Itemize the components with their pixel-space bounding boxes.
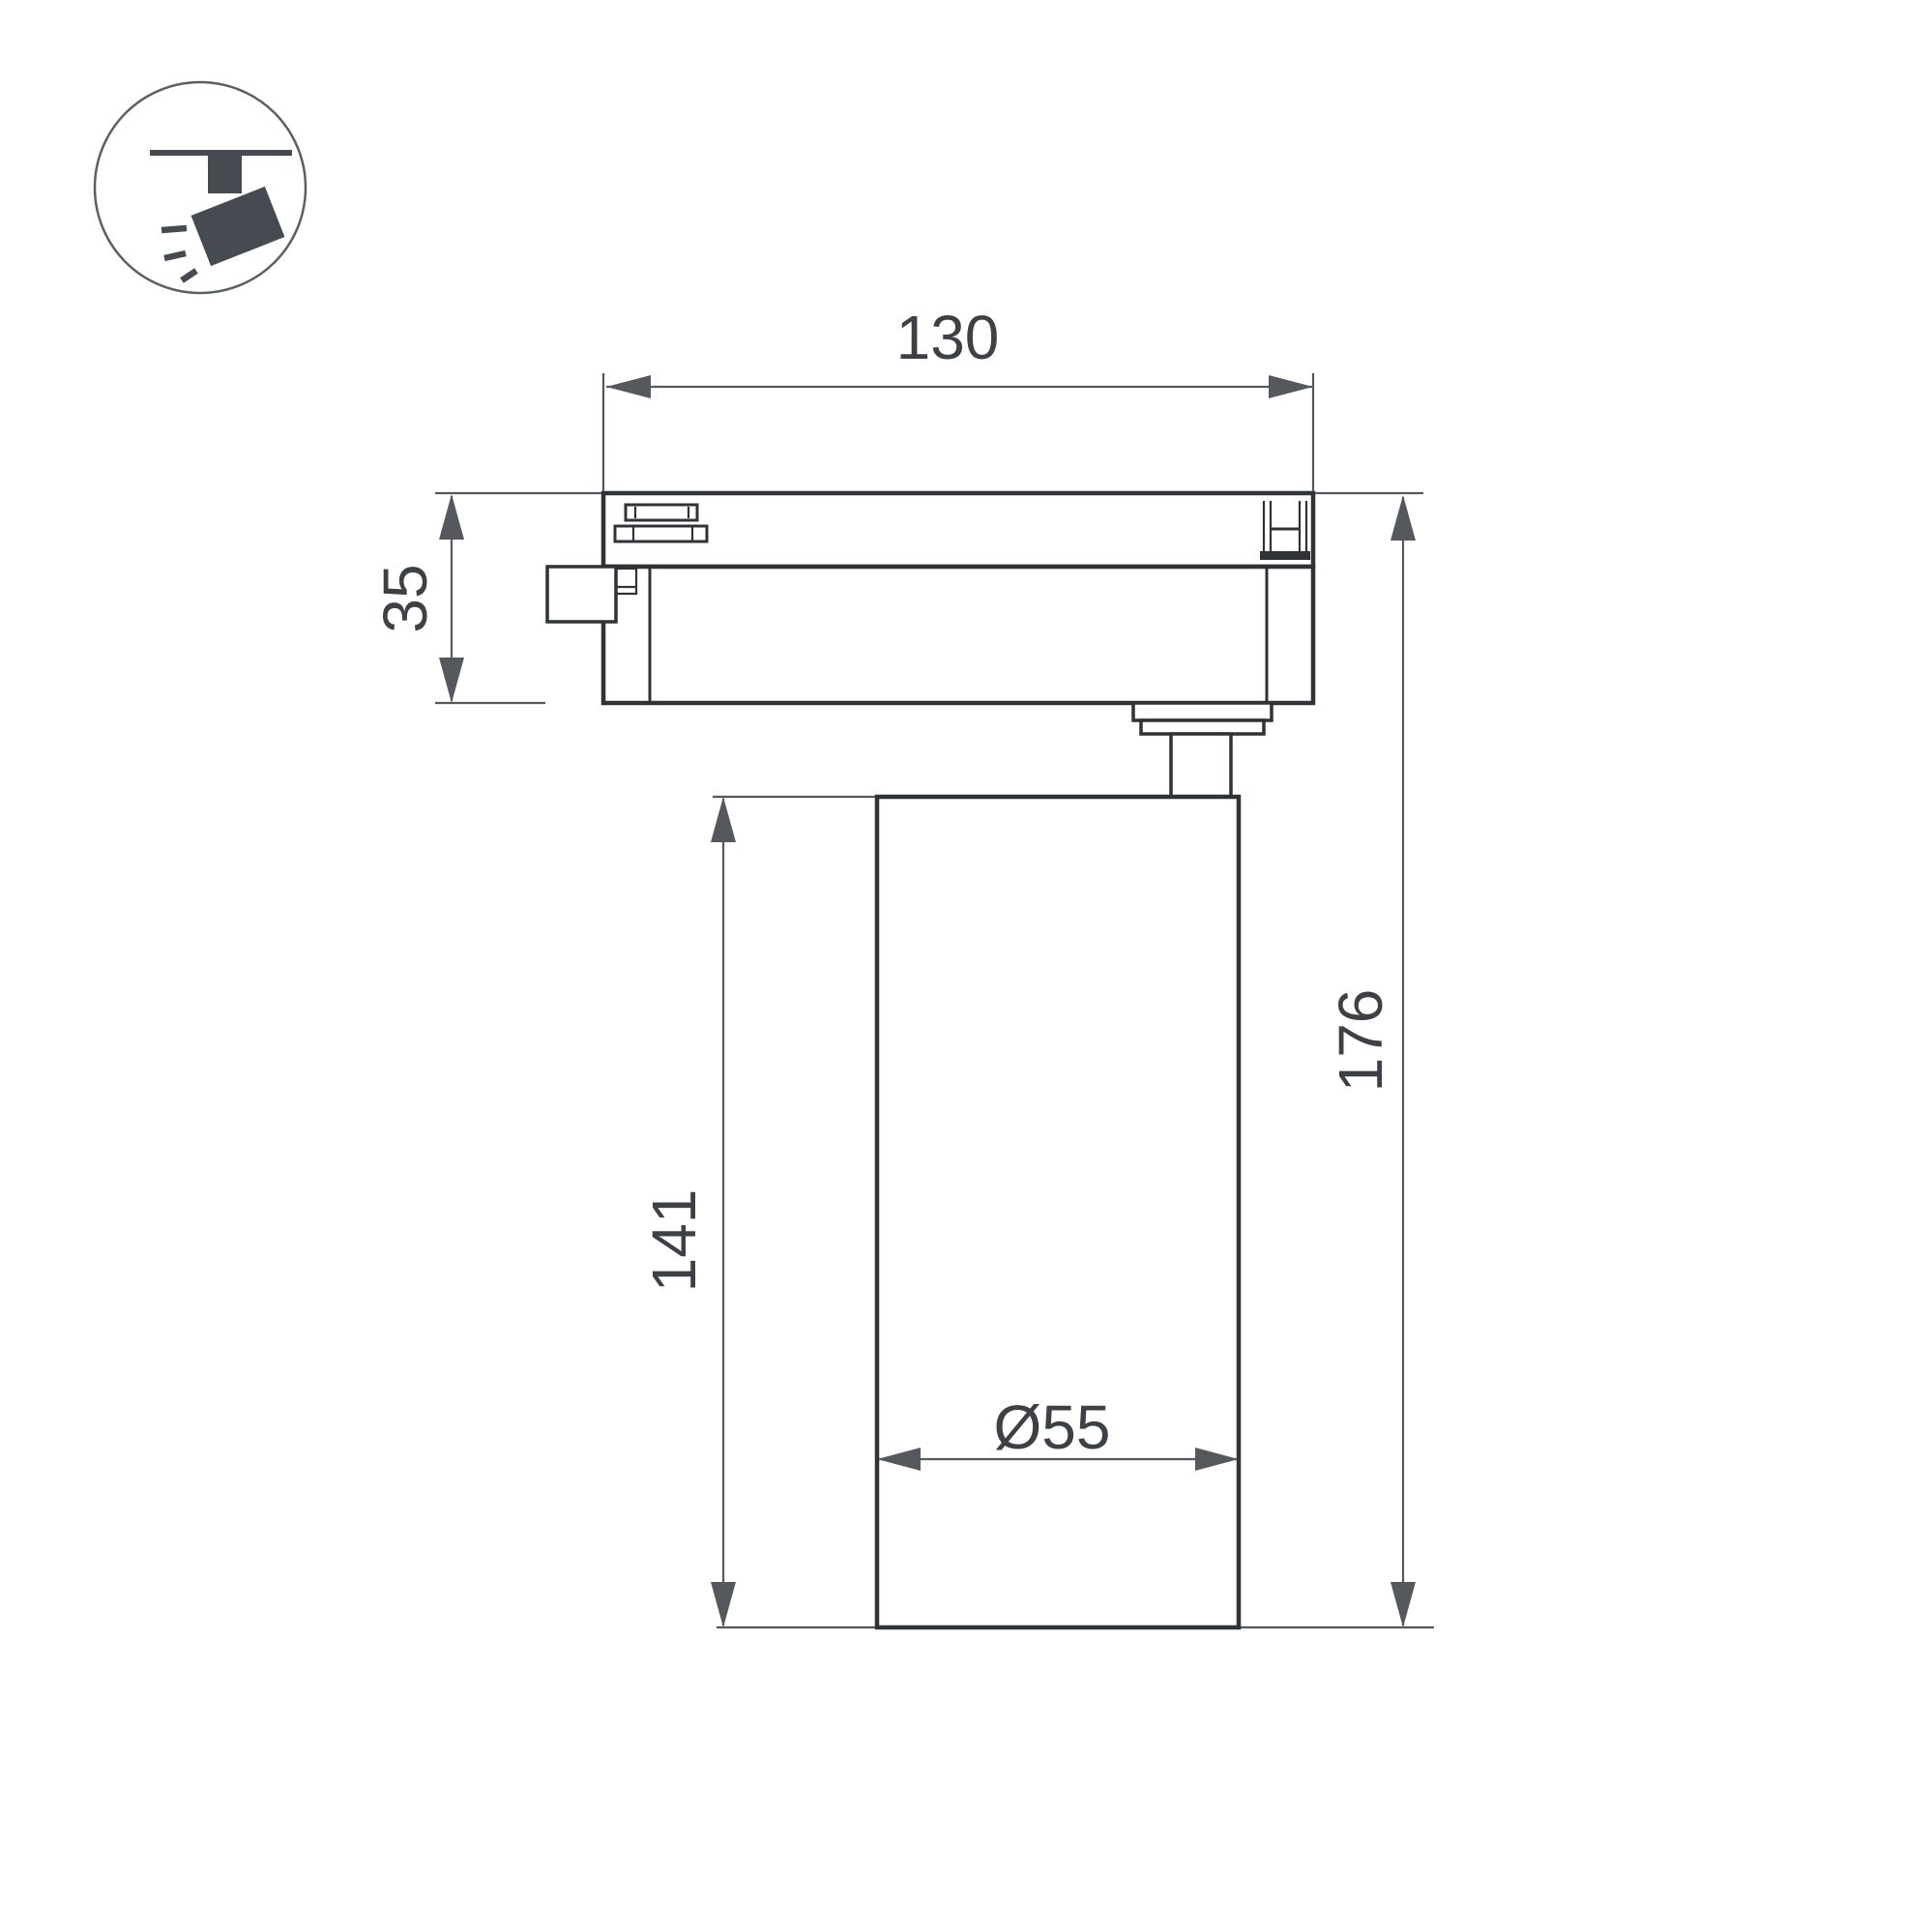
- arrowhead-right: [1269, 375, 1313, 398]
- dimension-track-width: 130: [603, 303, 1313, 491]
- track-adapter: [547, 493, 1313, 703]
- track-spotlight-icon: [95, 82, 306, 293]
- icon-circle: [95, 82, 306, 293]
- arrowhead-up: [711, 797, 736, 842]
- dimension-label-141: 141: [639, 1189, 709, 1293]
- dimension-label-130: 130: [896, 303, 1000, 372]
- arrowhead-down: [439, 658, 464, 703]
- dimension-body-height: 141: [639, 797, 875, 1627]
- dimension-total-height: 176: [1315, 493, 1423, 1627]
- pivot-stem: [1171, 734, 1231, 797]
- icon-stem: [208, 153, 242, 193]
- arrowhead-left: [606, 375, 651, 398]
- mount-step-upper: [1133, 703, 1272, 720]
- arrowhead-down: [711, 1582, 736, 1627]
- lamp-body: [877, 797, 1239, 1627]
- dimension-label-diameter: Ø55: [994, 1392, 1111, 1462]
- arrowhead-up: [439, 494, 464, 540]
- technical-drawing: 130 35 141 176 Ø55: [0, 0, 1932, 1932]
- adapter-housing: [603, 567, 1313, 703]
- clip-base: [1260, 551, 1310, 560]
- arrowhead-up: [1390, 495, 1416, 541]
- icon-light-ray: [161, 228, 187, 230]
- dimension-label-176: 176: [1326, 989, 1395, 1093]
- adapter-top-strip: [603, 493, 1313, 567]
- latch-lever: [547, 567, 616, 622]
- mount-and-stem: [1133, 703, 1272, 797]
- mount-step-lower: [1141, 720, 1264, 734]
- dimension-label-35: 35: [370, 564, 440, 632]
- drawing-canvas: 130 35 141 176 Ø55: [0, 0, 1932, 1932]
- arrowhead-down: [1390, 1582, 1416, 1627]
